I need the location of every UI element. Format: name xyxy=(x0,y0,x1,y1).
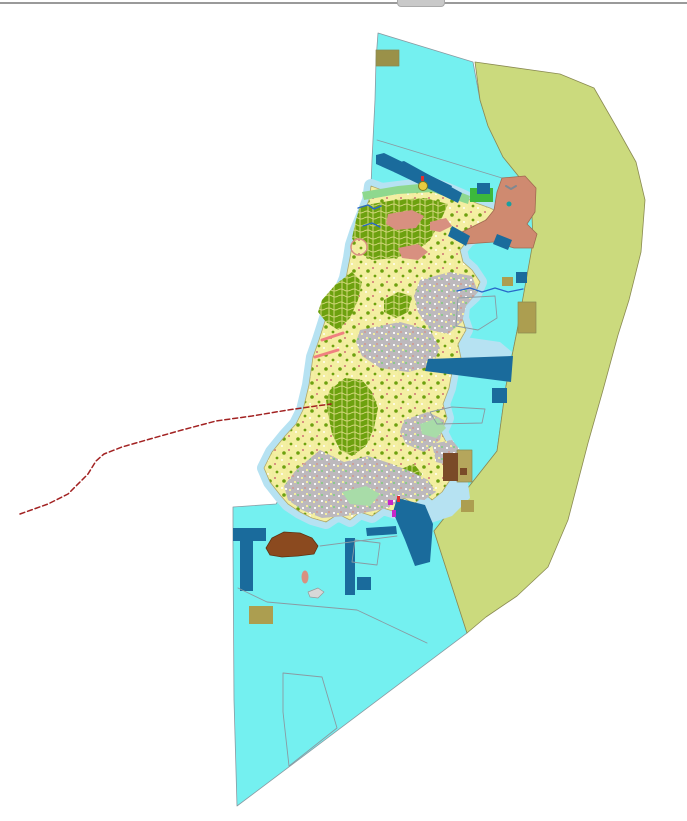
buoy-marker-tick xyxy=(421,176,424,181)
mooring-square-south xyxy=(357,577,371,590)
teal-dot-headland xyxy=(507,202,512,207)
magenta-mark-1 xyxy=(388,500,393,505)
tan-parcel-inner-mark xyxy=(460,468,467,475)
map-viewport[interactable] xyxy=(0,0,687,821)
islet-ring-west xyxy=(351,239,367,255)
khaki-parcel-top xyxy=(376,50,399,66)
islet-salmon-south xyxy=(302,571,309,584)
khaki-parcel-east xyxy=(518,302,536,333)
anchorage-square-east xyxy=(492,388,507,403)
khaki-square-northeast xyxy=(502,277,513,286)
t-pier-west-bar xyxy=(233,528,266,541)
tan-parcel-east xyxy=(457,450,472,482)
red-mark-harbor xyxy=(397,496,400,502)
khaki-parcel-south xyxy=(249,606,273,624)
pier-strip-south xyxy=(345,538,355,595)
brown-parcel-east xyxy=(443,453,458,481)
t-pier-west-stem xyxy=(240,541,253,591)
khaki-square-bay xyxy=(461,500,474,512)
map-canvas[interactable] xyxy=(0,0,687,821)
magenta-mark-2 xyxy=(392,510,396,517)
buoy-marker-north xyxy=(419,182,428,191)
port-quay-northeast xyxy=(477,183,490,194)
mooring-square-northeast xyxy=(516,272,527,283)
